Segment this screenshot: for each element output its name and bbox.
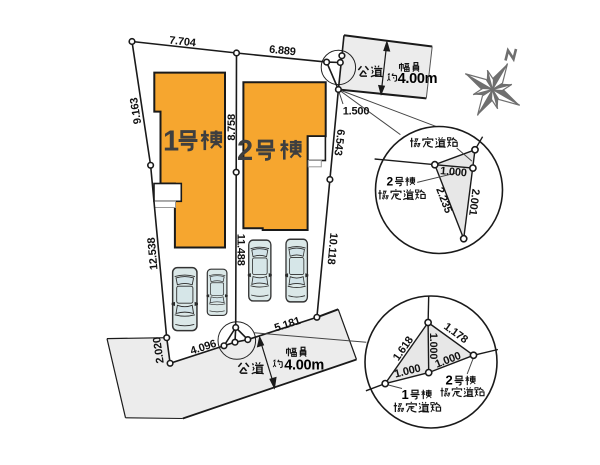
svg-text:1.000: 1.000: [440, 165, 468, 179]
svg-text:11.488: 11.488: [234, 234, 246, 266]
svg-text:1: 1: [163, 126, 179, 158]
svg-text:2: 2: [237, 135, 253, 167]
svg-text:1.000: 1.000: [427, 333, 439, 360]
svg-text:2: 2: [387, 174, 394, 188]
svg-text:2: 2: [446, 373, 453, 388]
svg-text:4.00m: 4.00m: [284, 357, 324, 373]
svg-text:1: 1: [402, 387, 409, 402]
svg-text:1.500: 1.500: [343, 105, 370, 117]
svg-text:4.00m: 4.00m: [398, 71, 438, 87]
